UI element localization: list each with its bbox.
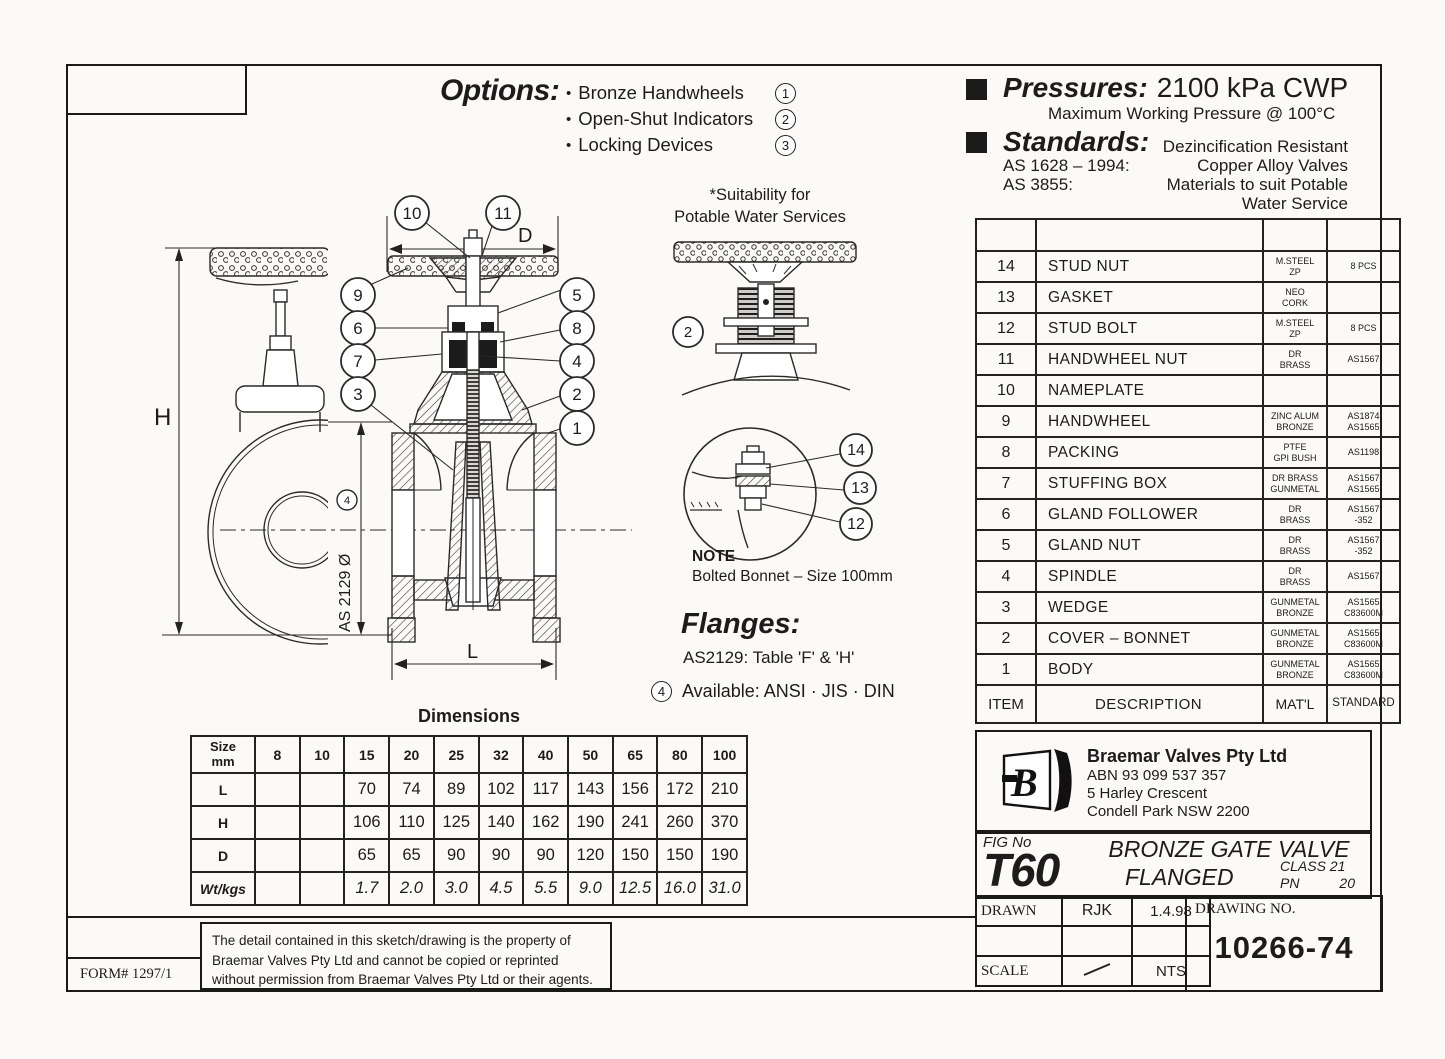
part-standard: AS1567 — [1327, 344, 1400, 375]
flanges-text: AS2129: Table 'F' & 'H' — [683, 648, 854, 668]
standards-title: Standards: — [1003, 126, 1149, 158]
part-description: GLAND NUT — [1036, 530, 1263, 561]
dimensions-title: Dimensions — [190, 706, 748, 727]
bullet-icon: • — [566, 111, 571, 128]
dims-value: 4.5 — [479, 872, 524, 905]
part-item-no: 12 — [976, 313, 1036, 344]
part-standard — [1327, 282, 1400, 313]
pn-label: PN — [1280, 875, 1299, 891]
standards-code-2: AS 3855: — [1003, 175, 1073, 195]
suitability-line1: *Suitability for — [655, 184, 865, 206]
part-material: NEO CORK — [1263, 282, 1327, 313]
part-material — [1263, 375, 1327, 406]
option-label: Bronze Handwheels — [578, 82, 775, 104]
options-list: • Bronze Handwheels 1 • Open-Shut Indica… — [566, 80, 796, 158]
callout-circle: 1 — [775, 83, 796, 104]
part-item-no: 13 — [976, 282, 1036, 313]
dims-header-row: Size mm 8101520253240506580100 — [191, 736, 747, 773]
part-description: STUD BOLT — [1036, 313, 1263, 344]
flanges-title: Flanges: — [681, 608, 800, 641]
dims-value: 2.0 — [389, 872, 434, 905]
callout-circle: 2 — [775, 109, 796, 130]
dims-value: 70 — [344, 773, 389, 806]
pn-value: 20 — [1339, 875, 1355, 891]
part-item-no: 5 — [976, 530, 1036, 561]
dims-value: 16.0 — [657, 872, 702, 905]
standards-desc-2: Materials to suit Potable — [1150, 175, 1348, 195]
options-item: • Locking Devices 3 — [566, 132, 796, 158]
dims-row-H: H 106110125140162190241260370 — [191, 806, 747, 839]
dims-value — [300, 773, 345, 806]
part-standard: 8 PCS — [1327, 313, 1400, 344]
dims-size-header: 10 — [300, 736, 345, 773]
parts-col-material: MAT'L — [1263, 685, 1327, 723]
part-description: PACKING — [1036, 437, 1263, 468]
suitability-line2: Potable Water Services — [655, 206, 865, 228]
part-material: DR BRASS — [1263, 530, 1327, 561]
flange-standard-label: AS 2129 Ø — [337, 554, 354, 632]
bullet-icon: • — [566, 85, 571, 102]
product-class: CLASS 21 — [1280, 858, 1345, 874]
drawing-linework — [162, 216, 632, 680]
bolted-bonnet-detail-drawing: 14 13 12 — [650, 412, 885, 577]
callout-14: 14 — [847, 442, 865, 459]
parts-row: 3 WEDGE GUNMETAL BRONZE AS1565 C83600M — [976, 592, 1400, 623]
part-standard: AS1874 AS1565 — [1327, 406, 1400, 437]
pressures-heading: Pressures: 2100 kPa CWP — [1003, 72, 1348, 104]
dims-value: 90 — [479, 839, 524, 872]
drawing-no-value: 10266-74 — [1187, 930, 1381, 966]
product-pn: PN 20 — [1280, 875, 1355, 891]
part-description: NAMEPLATE — [1036, 375, 1263, 406]
dims-value: 31.0 — [702, 872, 747, 905]
parts-row: 12 STUD BOLT M.STEEL ZP 8 PCS — [976, 313, 1400, 344]
part-item-no: 10 — [976, 375, 1036, 406]
part-material: PTFE GPI BUSH — [1263, 437, 1327, 468]
dimensions-table: Size mm 8101520253240506580100 L 7074891… — [190, 735, 748, 906]
part-standard: AS1567 — [1327, 561, 1400, 592]
dims-size-header: 20 — [389, 736, 434, 773]
part-standard: AS1567 AS1565 — [1327, 468, 1400, 499]
parts-row: 11 HANDWHEEL NUT DR BRASS AS1567 — [976, 344, 1400, 375]
part-item-no: 11 — [976, 344, 1036, 375]
dims-value: 110 — [389, 806, 434, 839]
dims-value: 162 — [523, 806, 568, 839]
part-item-no: 8 — [976, 437, 1036, 468]
dim-label-l: L — [467, 641, 478, 663]
slash-mark — [1080, 960, 1114, 978]
company-name: Braemar Valves Pty Ltd — [1087, 746, 1287, 767]
dims-value: 117 — [523, 773, 568, 806]
dims-value: 140 — [479, 806, 524, 839]
parts-row: 10 NAMEPLATE — [976, 375, 1400, 406]
callout-2-indicator: 2 — [684, 324, 692, 341]
dims-value: 90 — [523, 839, 568, 872]
dims-value: 89 — [434, 773, 479, 806]
disclaimer-text: The detail contained in this sketch/draw… — [202, 924, 610, 997]
drawing-no-label: DRAWING NO. — [1187, 897, 1381, 918]
callout-11: 11 — [494, 204, 512, 223]
callout-1: 1 — [572, 419, 581, 438]
part-description: BODY — [1036, 654, 1263, 685]
dims-corner-label: Size mm — [191, 736, 255, 773]
dims-value: 12.5 — [613, 872, 658, 905]
dims-value: 120 — [568, 839, 613, 872]
dims-size-header: 40 — [523, 736, 568, 773]
standards-bullet-square — [966, 132, 987, 153]
callout-13: 13 — [851, 480, 869, 497]
parts-row: 1 BODY GUNMETAL BRONZE AS1565 C83600M — [976, 654, 1400, 685]
flanges-availability-text: Available: ANSI · JIS · DIN — [682, 681, 895, 702]
note-title: NOTE — [692, 548, 735, 566]
dims-row-label: Wt/kgs — [191, 872, 255, 905]
dims-size-header: 80 — [657, 736, 702, 773]
dims-value: 3.0 — [434, 872, 479, 905]
part-material: GUNMETAL BRONZE — [1263, 654, 1327, 685]
callout-12: 12 — [847, 516, 865, 533]
part-description: COVER – BONNET — [1036, 623, 1263, 654]
company-logo: B — [998, 748, 1076, 814]
dims-value: 65 — [389, 839, 434, 872]
callout-3: 3 — [353, 385, 362, 404]
callout-9: 9 — [353, 286, 362, 305]
dims-value — [255, 773, 300, 806]
dims-value — [300, 872, 345, 905]
dims-value — [255, 806, 300, 839]
dims-row-label: D — [191, 839, 255, 872]
dims-value — [255, 839, 300, 872]
parts-row: 7 STUFFING BOX DR BRASS GUNMETAL AS1567 … — [976, 468, 1400, 499]
dims-size-header: 100 — [702, 736, 747, 773]
pressures-subtitle: Maximum Working Pressure @ 100°C — [1048, 104, 1335, 124]
dims-size-header: 15 — [344, 736, 389, 773]
option-label: Locking Devices — [578, 134, 775, 156]
dims-size-header: 32 — [479, 736, 524, 773]
callout-2: 2 — [572, 385, 581, 404]
callout-circle-4: 4 — [651, 681, 672, 702]
dims-size-header: 25 — [434, 736, 479, 773]
dims-row-D: D 6565909090120150150190 — [191, 839, 747, 872]
part-material: M.STEEL ZP — [1263, 251, 1327, 282]
parts-empty-row — [976, 219, 1400, 251]
parts-col-standard: STANDARD — [1327, 685, 1400, 723]
callout-circle: 3 — [775, 135, 796, 156]
part-description: HANDWHEEL NUT — [1036, 344, 1263, 375]
dims-value: 106 — [344, 806, 389, 839]
dim-label-d: D — [518, 225, 532, 247]
dims-value — [255, 872, 300, 905]
part-description: STUD NUT — [1036, 251, 1263, 282]
dims-value: 150 — [613, 839, 658, 872]
part-standard: AS1198 — [1327, 437, 1400, 468]
part-item-no: 1 — [976, 654, 1036, 685]
dims-value: 65 — [344, 839, 389, 872]
dims-value: 370 — [702, 806, 747, 839]
left-bottom-divider — [66, 916, 975, 918]
titleblock-grid: DRAWN RJK 1.4.98 SCALE NTS — [975, 895, 1211, 987]
parts-row: 8 PACKING PTFE GPI BUSH AS1198 — [976, 437, 1400, 468]
callout-5: 5 — [572, 286, 581, 305]
disclaimer-box: The detail contained in this sketch/draw… — [200, 922, 612, 990]
part-standard — [1327, 375, 1400, 406]
dims-value: 5.5 — [523, 872, 568, 905]
suitability-caption: *Suitability for Potable Water Services — [655, 184, 865, 229]
parts-col-description: DESCRIPTION — [1036, 685, 1263, 723]
part-item-no: 2 — [976, 623, 1036, 654]
parts-col-item: ITEM — [976, 685, 1036, 723]
dims-size-header: 50 — [568, 736, 613, 773]
parts-table: 14 STUD NUT M.STEEL ZP 8 PCS 13 GASKET N… — [975, 218, 1401, 724]
part-material: GUNMETAL BRONZE — [1263, 592, 1327, 623]
valve-cross-section-drawing: 10 11 9 6 7 3 5 8 4 2 1 H D L AS 2129 Ø … — [140, 180, 640, 720]
dims-value: 90 — [434, 839, 479, 872]
product-type: FLANGED — [1125, 864, 1234, 891]
dims-value: 1.7 — [344, 872, 389, 905]
dims-value: 241 — [613, 806, 658, 839]
parts-row: 5 GLAND NUT DR BRASS AS1567 -352 — [976, 530, 1400, 561]
drawn-by: RJK — [1062, 896, 1132, 926]
drawing-no-box: DRAWING NO. 10266-74 — [1185, 895, 1383, 992]
part-description: HANDWHEEL — [1036, 406, 1263, 437]
standards-desc-1: Copper Alloy Valves — [1150, 156, 1348, 176]
scale-slash — [1062, 956, 1132, 986]
indicator-detail-drawing: 2 — [662, 232, 867, 397]
part-standard: AS1565 C83600M — [1327, 592, 1400, 623]
part-item-no: 7 — [976, 468, 1036, 499]
part-material: M.STEEL ZP — [1263, 313, 1327, 344]
part-material: DR BRASS — [1263, 499, 1327, 530]
part-material: ZINC ALUM BRONZE — [1263, 406, 1327, 437]
datasheet-page: Options: • Bronze Handwheels 1 • Open-Sh… — [0, 0, 1445, 1059]
standards-code-1: AS 1628 – 1994: — [1003, 156, 1130, 176]
callout-4: 4 — [572, 352, 581, 371]
dims-row-weight: Wt/kgs 1.72.03.04.55.59.012.516.031.0 — [191, 872, 747, 905]
dims-value: 125 — [434, 806, 479, 839]
scale-label: SCALE — [976, 956, 1062, 986]
company-abn: ABN 93 099 537 357 — [1087, 767, 1226, 784]
bullet-icon: • — [566, 137, 571, 154]
form-cell: FORM# 1297/1 — [66, 957, 202, 990]
part-description: GLAND FOLLOWER — [1036, 499, 1263, 530]
options-item: • Bronze Handwheels 1 — [566, 80, 796, 106]
flange-callout-4: 4 — [344, 495, 350, 507]
part-standard: AS1565 C83600M — [1327, 623, 1400, 654]
part-standard: AS1567 -352 — [1327, 530, 1400, 561]
part-material: DR BRASS — [1263, 344, 1327, 375]
parts-row: 14 STUD NUT M.STEEL ZP 8 PCS — [976, 251, 1400, 282]
callout-10: 10 — [403, 204, 422, 223]
part-standard: AS1565 C83600M — [1327, 654, 1400, 685]
options-item: • Open-Shut Indicators 2 — [566, 106, 796, 132]
dims-value: 260 — [657, 806, 702, 839]
part-standard: AS1567 -352 — [1327, 499, 1400, 530]
options-title: Options: — [440, 74, 559, 108]
note-text: Bolted Bonnet – Size 100mm — [692, 568, 893, 586]
parts-row: 13 GASKET NEO CORK — [976, 282, 1400, 313]
dims-value: 9.0 — [568, 872, 613, 905]
callout-8: 8 — [572, 319, 581, 338]
dims-row-L: L 707489102117143156172210 — [191, 773, 747, 806]
part-standard: 8 PCS — [1327, 251, 1400, 282]
dims-value: 210 — [702, 773, 747, 806]
part-description: GASKET — [1036, 282, 1263, 313]
parts-row: 4 SPINDLE DR BRASS AS1567 — [976, 561, 1400, 592]
dims-value: 156 — [613, 773, 658, 806]
pressures-value: 2100 kPa CWP — [1157, 72, 1348, 104]
part-material: GUNMETAL BRONZE — [1263, 623, 1327, 654]
dim-label-h: H — [154, 404, 171, 431]
dims-value: 143 — [568, 773, 613, 806]
parts-row: 6 GLAND FOLLOWER DR BRASS AS1567 -352 — [976, 499, 1400, 530]
dims-row-label: H — [191, 806, 255, 839]
part-description: STUFFING BOX — [1036, 468, 1263, 499]
part-description: WEDGE — [1036, 592, 1263, 623]
dims-value: 172 — [657, 773, 702, 806]
pressures-title: Pressures: — [1003, 72, 1148, 104]
part-item-no: 4 — [976, 561, 1036, 592]
parts-row: 9 HANDWHEEL ZINC ALUM BRONZE AS1874 AS15… — [976, 406, 1400, 437]
drawn-label: DRAWN — [976, 896, 1062, 926]
callout-6: 6 — [353, 319, 362, 338]
dims-value: 150 — [657, 839, 702, 872]
pressures-bullet-square — [966, 79, 987, 100]
dims-value: 74 — [389, 773, 434, 806]
dims-value: 190 — [568, 806, 613, 839]
top-left-box — [66, 64, 247, 115]
titleblock-empty-row — [976, 926, 1210, 956]
part-material: DR BRASS — [1263, 561, 1327, 592]
part-item-no: 9 — [976, 406, 1036, 437]
dims-value — [300, 806, 345, 839]
form-number: FORM# 1297/1 — [66, 959, 200, 983]
parts-header-row: ITEM DESCRIPTION MAT'L STANDARD — [976, 685, 1400, 723]
dims-value — [300, 839, 345, 872]
dims-row-label: L — [191, 773, 255, 806]
part-description: SPINDLE — [1036, 561, 1263, 592]
flanges-availability: 4 Available: ANSI · JIS · DIN — [651, 681, 895, 702]
standards-note: Dezincification Resistant — [1150, 137, 1348, 157]
callout-7: 7 — [353, 352, 362, 371]
part-item-no: 14 — [976, 251, 1036, 282]
company-address-2: Condell Park NSW 2200 — [1087, 803, 1250, 820]
option-label: Open-Shut Indicators — [578, 108, 775, 130]
part-item-no: 6 — [976, 499, 1036, 530]
fig-number: T60 — [983, 843, 1059, 897]
dims-value: 102 — [479, 773, 524, 806]
company-address-1: 5 Harley Crescent — [1087, 785, 1207, 802]
parts-row: 2 COVER – BONNET GUNMETAL BRONZE AS1565 … — [976, 623, 1400, 654]
dims-size-header: 65 — [613, 736, 658, 773]
dims-value: 190 — [702, 839, 747, 872]
logo-letter: B — [1010, 760, 1038, 805]
dims-size-header: 8 — [255, 736, 300, 773]
part-material: DR BRASS GUNMETAL — [1263, 468, 1327, 499]
part-item-no: 3 — [976, 592, 1036, 623]
standards-desc-cont: Water Service — [1150, 194, 1348, 214]
